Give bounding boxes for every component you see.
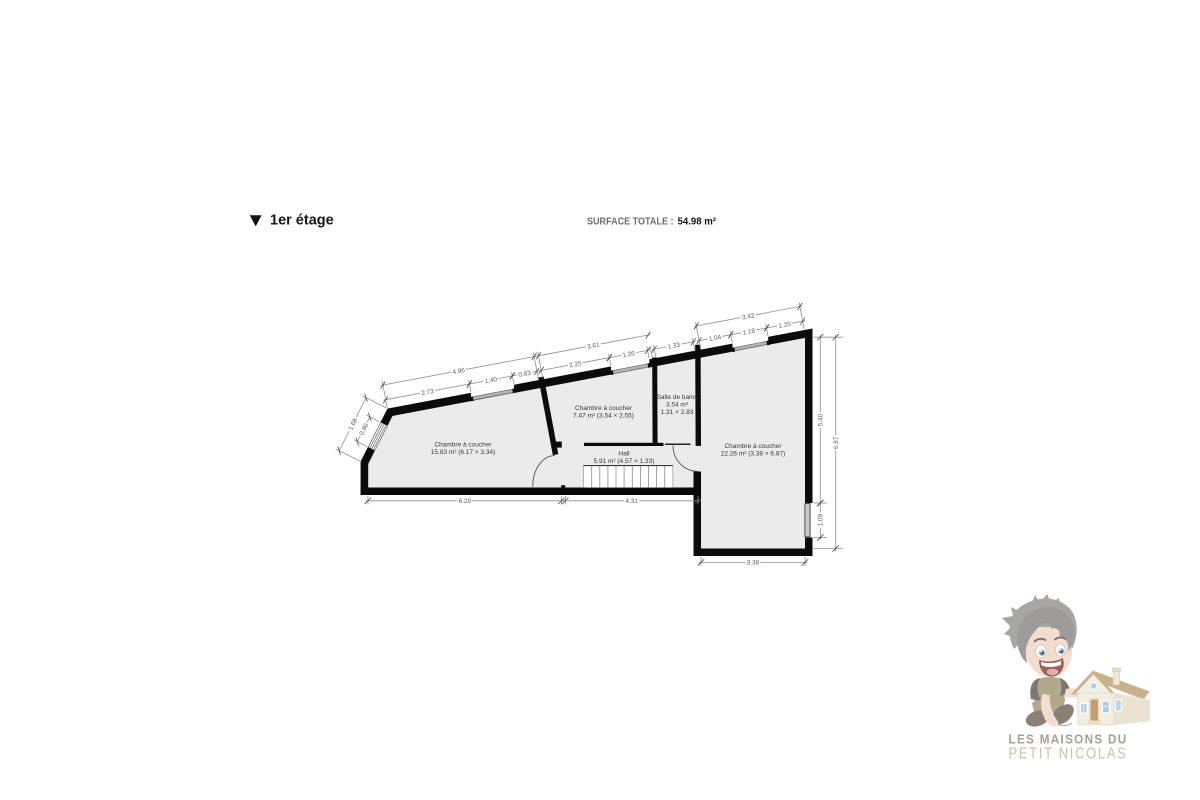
svg-text:Chambre à coucher22.26 m² (3.3: Chambre à coucher22.26 m² (3.38 × 6.87): [721, 443, 786, 458]
svg-text:1er étage: 1er étage: [270, 212, 334, 228]
svg-text:54.98 m²: 54.98 m²: [678, 217, 717, 228]
svg-text:3.38: 3.38: [747, 560, 760, 567]
svg-text:LES MAISONS DU: LES MAISONS DU: [1009, 732, 1128, 747]
svg-text:Chambre à coucher7.47 m² (3.54: Chambre à coucher7.47 m² (3.54 × 2.55): [573, 405, 634, 420]
svg-text:1.09: 1.09: [818, 514, 825, 527]
svg-text:SURFACE TOTALE :: SURFACE TOTALE :: [587, 217, 674, 228]
svg-text:PETIT NICOLAS: PETIT NICOLAS: [1009, 746, 1128, 763]
svg-text:6.29: 6.29: [459, 498, 472, 505]
svg-text:6.87: 6.87: [833, 436, 840, 449]
svg-text:4.31: 4.31: [625, 498, 638, 505]
svg-text:5.40: 5.40: [818, 413, 825, 426]
svg-text:Chambre à coucher15.83 m² (6.1: Chambre à coucher15.83 m² (6.17 × 3.34): [431, 441, 496, 456]
